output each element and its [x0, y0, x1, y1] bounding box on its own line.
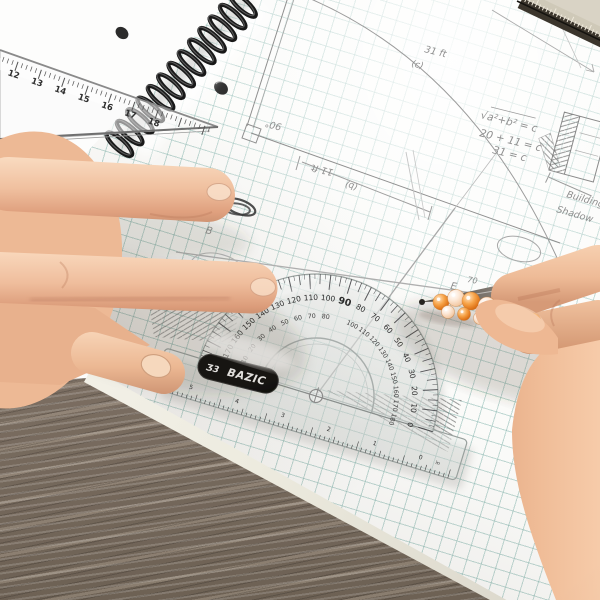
- photo-scene: 90° 11 ft (b) 31 ft (c) √a²+b² = c 20 + …: [0, 0, 600, 600]
- vignette: [0, 0, 600, 600]
